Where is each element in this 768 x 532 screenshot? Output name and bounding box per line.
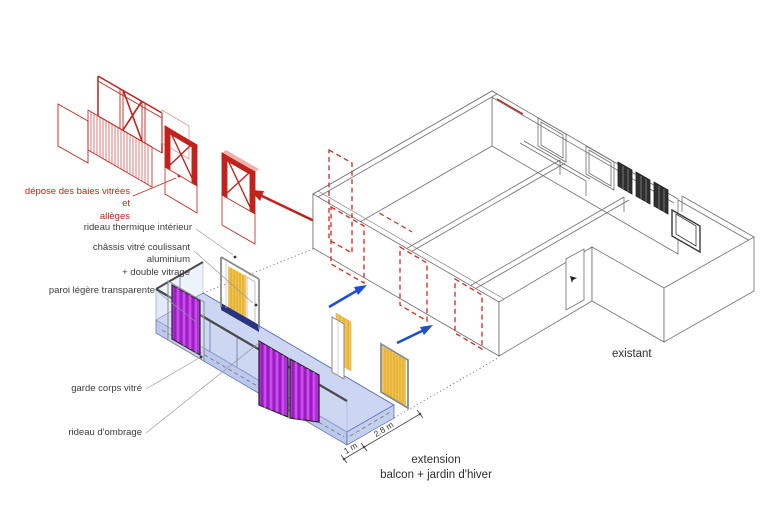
label-light-wall: paroi légère transparente (15, 285, 155, 297)
post-and-curtain (332, 313, 351, 379)
blue-arrow-icon-2 (397, 325, 433, 343)
architectural-diagram: dépose des baies vitrées et allèges ride… (0, 0, 768, 532)
label-guardrail: garde corps vitré (32, 383, 142, 395)
label-demolition: dépose des baies vitrées et allèges (18, 186, 130, 223)
label-shade-curtain: rideau d'ombrage (32, 427, 142, 439)
label-existing: existant (612, 347, 702, 362)
railing-hatch (91, 112, 148, 185)
label-thermal-curtain: rideau thermique intérieur (52, 222, 192, 234)
label-extension: extension balcon + jardin d'hiver (350, 453, 522, 483)
label-sliding-frame: châssis vitré coulissant aluminium + dou… (40, 242, 190, 279)
existing-building (313, 91, 754, 356)
blue-arrow-icon-1 (329, 285, 367, 307)
thermal-curtain-panel (381, 344, 408, 408)
